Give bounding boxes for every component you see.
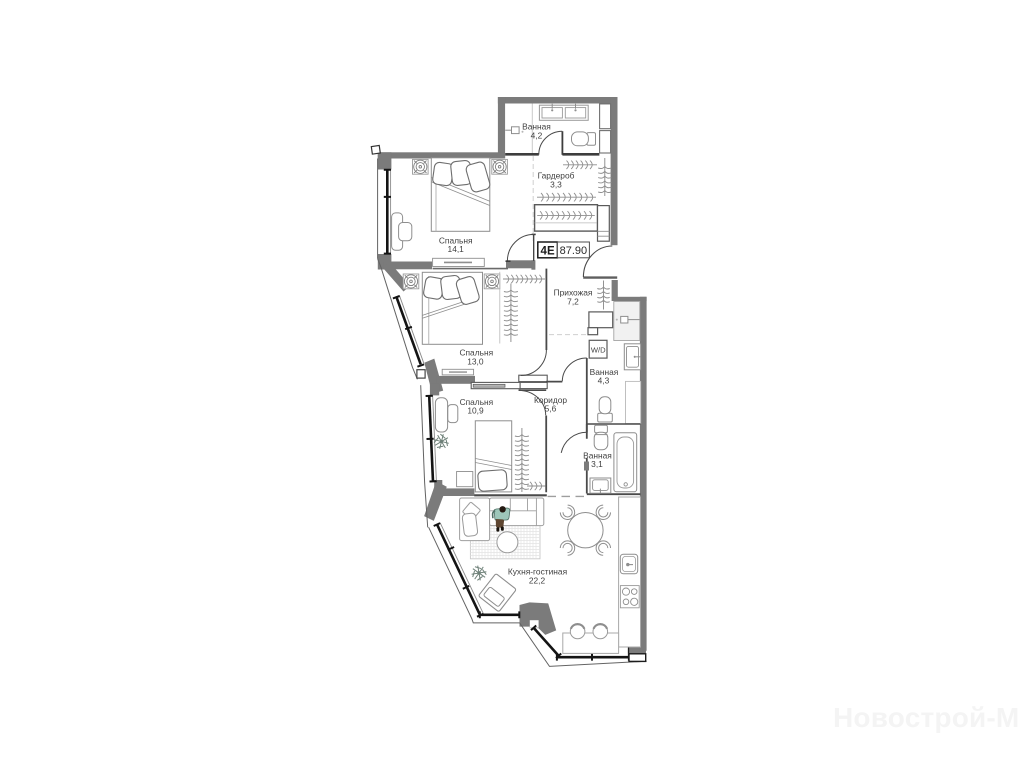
svg-text:W/D: W/D: [591, 345, 606, 354]
svg-text:87.90: 87.90: [560, 245, 588, 257]
svg-text:4,2: 4,2: [531, 131, 543, 141]
svg-text:3,1: 3,1: [591, 459, 603, 469]
svg-text:13,0: 13,0: [467, 356, 484, 366]
svg-text:4Е: 4Е: [541, 245, 555, 257]
svg-text:5,6: 5,6: [545, 404, 557, 414]
svg-text:4,3: 4,3: [598, 375, 610, 385]
svg-text:14,1: 14,1: [448, 244, 465, 254]
svg-text:22,2: 22,2: [529, 575, 546, 585]
svg-text:10,9: 10,9: [467, 406, 484, 416]
svg-text:3,3: 3,3: [550, 180, 562, 190]
svg-text:7,2: 7,2: [567, 297, 579, 307]
